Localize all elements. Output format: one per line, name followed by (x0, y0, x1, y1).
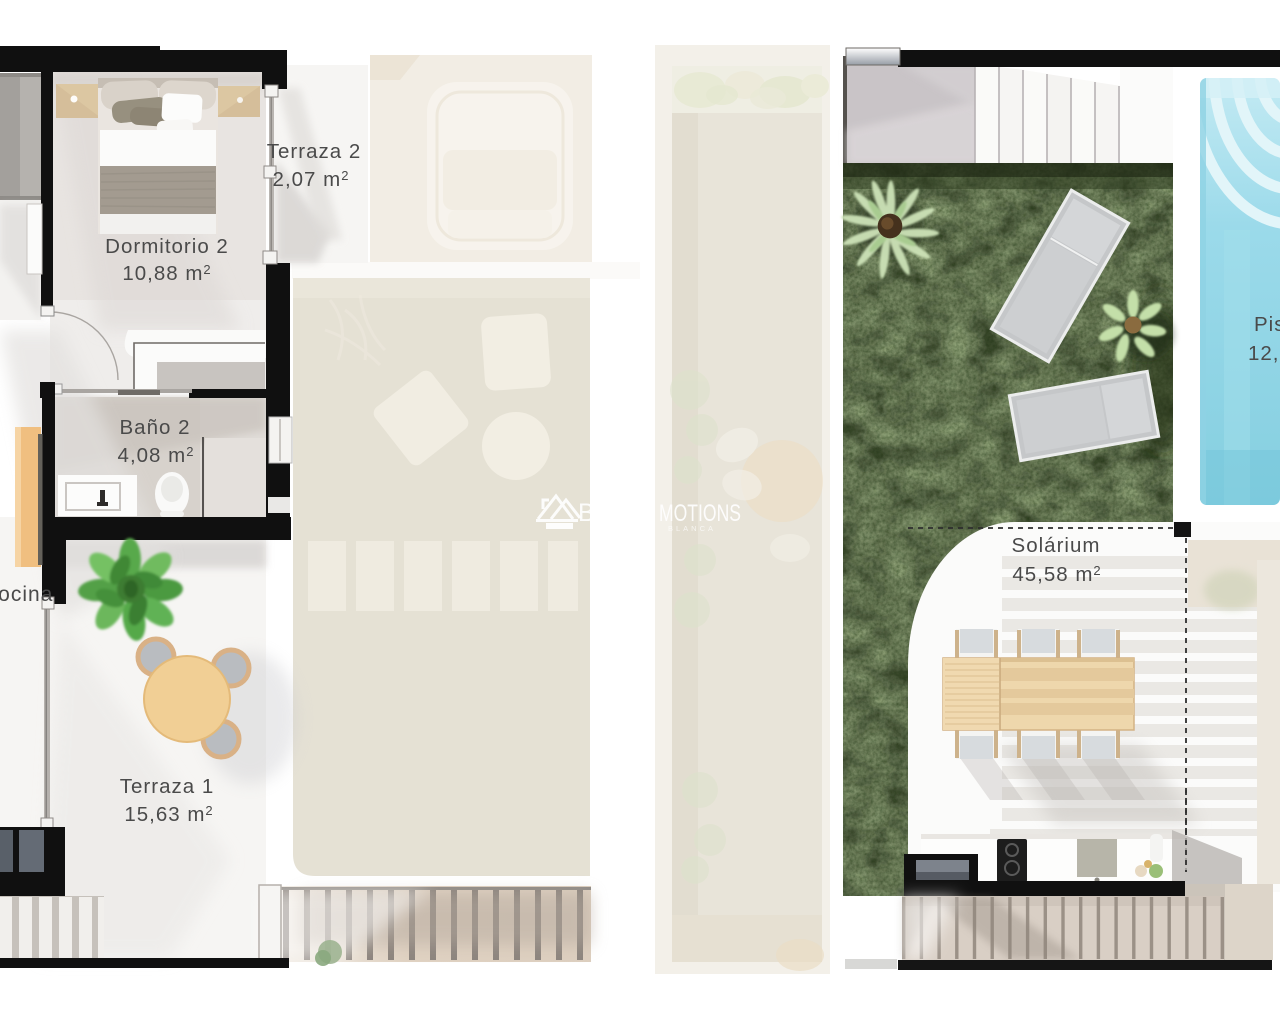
svg-text:Cocina: Cocina (0, 583, 53, 606)
svg-text:10,88 m2: 10,88 m2 (122, 262, 211, 285)
svg-text:Solárium: Solárium (1012, 534, 1101, 557)
svg-text:MOTIONS: MOTIONS (659, 500, 741, 527)
svg-text:Dormitorio 2: Dormitorio 2 (105, 235, 229, 258)
svg-text:12,05 m2: 12,05 m2 (1248, 342, 1280, 365)
svg-text:45,58 m2: 45,58 m2 (1012, 563, 1101, 586)
svg-text:2,07 m2: 2,07 m2 (273, 168, 350, 191)
svg-text:Terraza 1: Terraza 1 (120, 775, 214, 798)
svg-text:Baño 2: Baño 2 (120, 416, 191, 439)
svg-text:BLANCA: BLANCA (668, 524, 716, 533)
svg-text:4,08 m2: 4,08 m2 (118, 444, 195, 467)
svg-text:Terraza 2: Terraza 2 (267, 140, 361, 163)
svg-text:B: B (578, 499, 595, 527)
svg-text:15,63 m2: 15,63 m2 (124, 803, 213, 826)
svg-text:Piscina: Piscina (1254, 313, 1280, 336)
